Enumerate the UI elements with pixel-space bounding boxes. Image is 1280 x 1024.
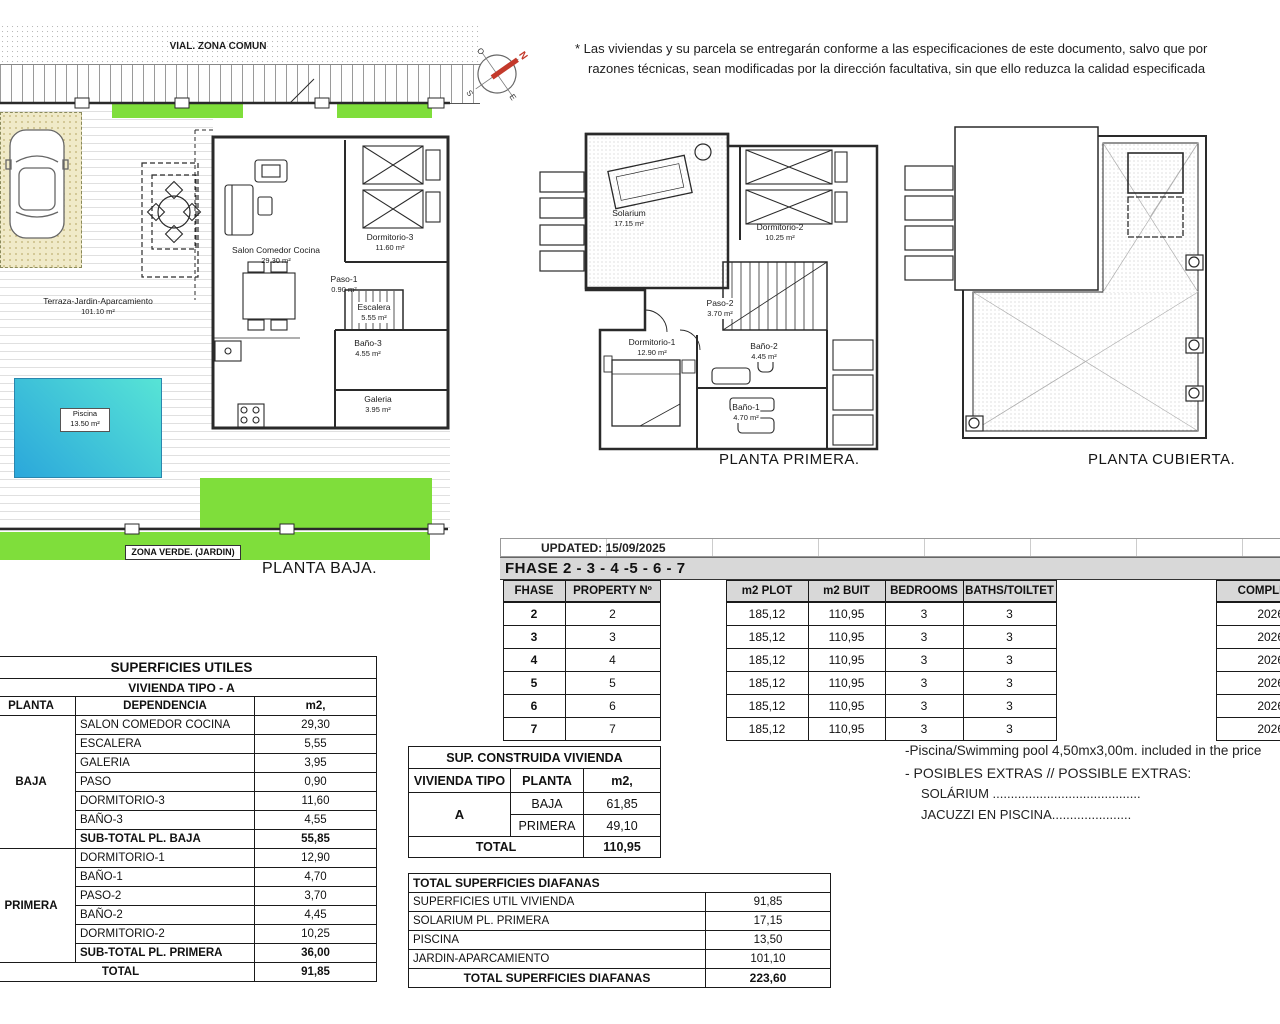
planta-cubierta-linework [0, 0, 1280, 480]
cell: 2026-2 [1216, 625, 1280, 649]
cell: 2026-2 [1216, 671, 1280, 695]
cell: 3 [885, 602, 964, 626]
cell: 2026-2 [1216, 717, 1280, 741]
cell: 4,70 [255, 868, 377, 887]
cell: 61,85 [584, 793, 661, 815]
cell: 4 [565, 648, 661, 672]
subtotal-baja-value: 55,85 [255, 830, 377, 849]
table-subtitle: VIVIENDA TIPO - A [0, 679, 377, 697]
col-header-planta: PLANTA [0, 697, 76, 716]
cell: BAÑO-2 [76, 906, 255, 925]
cell: 2 [565, 602, 661, 626]
cell: 110,95 [808, 694, 886, 718]
subtotal-primera: SUB-TOTAL PL. PRIMERA [76, 944, 255, 963]
cell: 29,30 [255, 716, 377, 735]
cell: 185,12 [726, 717, 809, 741]
cell: 5 [503, 671, 566, 695]
cell: 185,12 [726, 694, 809, 718]
cell: 3 [963, 625, 1057, 649]
cell: 5 [565, 671, 661, 695]
subtotal-baja: SUB-TOTAL PL. BAJA [76, 830, 255, 849]
cell: 3,95 [255, 754, 377, 773]
cell: 110,95 [808, 648, 886, 672]
cell: 3 [885, 648, 964, 672]
subtotal-primera-value: 36,00 [255, 944, 377, 963]
cell: 110,95 [808, 717, 886, 741]
cell: 4,55 [255, 811, 377, 830]
cell: DORMITORIO-3 [76, 792, 255, 811]
cell: 3 [963, 602, 1057, 626]
planta-cubierta-title: PLANTA CUBIERTA. [1088, 451, 1235, 468]
cell: 3 [963, 694, 1057, 718]
col-header-dependencia: DEPENDENCIA [76, 697, 255, 716]
cell: 2026-2 [1216, 694, 1280, 718]
phase-table: FHASE PROPERTY Nº m2 PLOT m2 BUIT BEDROO… [503, 580, 1280, 740]
planta-baja-title: PLANTA BAJA. [262, 560, 377, 578]
cell: 6 [565, 694, 661, 718]
cell: GALERIA [76, 754, 255, 773]
extras-notes: -Piscina/Swimming pool 4,50mx3,00m. incl… [905, 740, 1261, 826]
cell: 3 [565, 625, 661, 649]
diafanas-table: TOTAL SUPERFICIES DIAFANAS SUPERFICIES U… [408, 873, 831, 988]
cell: 7 [565, 717, 661, 741]
vivienda-tipo: A [409, 793, 511, 837]
total-value: 110,95 [584, 837, 661, 858]
cell: BAJA [511, 793, 584, 815]
possible-extras-line: - POSIBLES EXTRAS // POSSIBLE EXTRAS: [905, 762, 1261, 784]
cell: BAÑO-3 [76, 811, 255, 830]
col-header: PLANTA [511, 769, 584, 793]
cell: 3 [885, 671, 964, 695]
cell: 3 [885, 694, 964, 718]
plan-sheet: VIAL. ZONA COMUN Salon Comedor Cocina29.… [0, 0, 1280, 1024]
total-value: 223,60 [706, 969, 831, 988]
cell: 5,55 [255, 735, 377, 754]
cell: PRIMERA [511, 815, 584, 837]
col-header: m2, [584, 769, 661, 793]
cell: 0,90 [255, 773, 377, 792]
cell: PASO [76, 773, 255, 792]
cell: BAÑO-1 [76, 868, 255, 887]
total-label: TOTAL [409, 837, 584, 858]
cell: 91,85 [706, 893, 831, 912]
col-header-completion: COMPLETION [1216, 580, 1280, 602]
cell: SUPERFICIES UTIL VIVIENDA [409, 893, 706, 912]
superficies-utiles-table: SUPERFICIES UTILES VIVIENDA TIPO - A PLA… [0, 656, 377, 982]
updated-row: UPDATED: 15/09/2025 [500, 538, 1280, 557]
col-header: VIVIENDA TIPO [409, 769, 511, 793]
cell: 7 [503, 717, 566, 741]
col-header-fhase: FHASE [503, 580, 566, 602]
cell: 3,70 [255, 887, 377, 906]
cell: 4 [503, 648, 566, 672]
cell: 12,90 [255, 849, 377, 868]
cell: 3 [885, 717, 964, 741]
col-header-m2plot: m2 PLOT [726, 580, 809, 602]
cell: ESCALERA [76, 735, 255, 754]
cell: PASO-2 [76, 887, 255, 906]
cell: 110,95 [808, 671, 886, 695]
total-label: TOTAL SUPERFICIES DIAFANAS [409, 969, 706, 988]
construida-table: SUP. CONSTRUIDA VIVIENDA VIVIENDA TIPO P… [408, 746, 661, 858]
col-header-m2buit: m2 BUIT [808, 580, 886, 602]
table-title: SUPERFICIES UTILES [0, 657, 377, 679]
cell: 2026-2 [1216, 648, 1280, 672]
cell: DORMITORIO-2 [76, 925, 255, 944]
cell: 10,25 [255, 925, 377, 944]
cell: 110,95 [808, 625, 886, 649]
planta-baja-group: BAJA [0, 716, 76, 849]
cell: 3 [503, 625, 566, 649]
cell: 2 [503, 602, 566, 626]
cell: 185,12 [726, 602, 809, 626]
col-header-baths: BATHS/TOILTET [963, 580, 1057, 602]
cell: PISCINA [409, 931, 706, 950]
cell: 110,95 [808, 602, 886, 626]
col-header-m2: m2, [255, 697, 377, 716]
cell: JARDIN-APARCAMIENTO [409, 950, 706, 969]
cell: 3 [885, 625, 964, 649]
pool-included-line: -Piscina/Swimming pool 4,50mx3,00m. incl… [905, 740, 1261, 762]
table-title: TOTAL SUPERFICIES DIAFANAS [409, 874, 831, 893]
cell: 185,12 [726, 671, 809, 695]
cell: DORMITORIO-1 [76, 849, 255, 868]
col-header-property: PROPERTY Nº [565, 580, 661, 602]
cell: 4,45 [255, 906, 377, 925]
cell: 3 [963, 648, 1057, 672]
zona-verde-label: ZONA VERDE. (JARDIN) [125, 545, 241, 560]
cell: SALON COMEDOR COCINA [76, 716, 255, 735]
phase-band: FHASE 2 - 3 - 4 -5 - 6 - 7 [500, 557, 1280, 580]
cell: 3 [963, 671, 1057, 695]
planta-primera-group: PRIMERA [0, 849, 76, 963]
extra-jacuzzi: JACUZZI EN PISCINA...................... [905, 805, 1261, 826]
extra-solarium: SOLÁRIUM ...............................… [905, 784, 1261, 805]
col-header-bedrooms: BEDROOMS [885, 580, 964, 602]
cell: 185,12 [726, 625, 809, 649]
cell: 13,50 [706, 931, 831, 950]
table-title: SUP. CONSTRUIDA VIVIENDA [409, 747, 661, 769]
cell: 101,10 [706, 950, 831, 969]
cell: 3 [963, 717, 1057, 741]
cell: 17,15 [706, 912, 831, 931]
cell: SOLARIUM PL. PRIMERA [409, 912, 706, 931]
cell: 11,60 [255, 792, 377, 811]
cell: 2026-2 [1216, 602, 1280, 626]
total-value: 91,85 [255, 963, 377, 982]
cell: 6 [503, 694, 566, 718]
cell: 185,12 [726, 648, 809, 672]
cell: 49,10 [584, 815, 661, 837]
total-label: TOTAL [0, 963, 255, 982]
